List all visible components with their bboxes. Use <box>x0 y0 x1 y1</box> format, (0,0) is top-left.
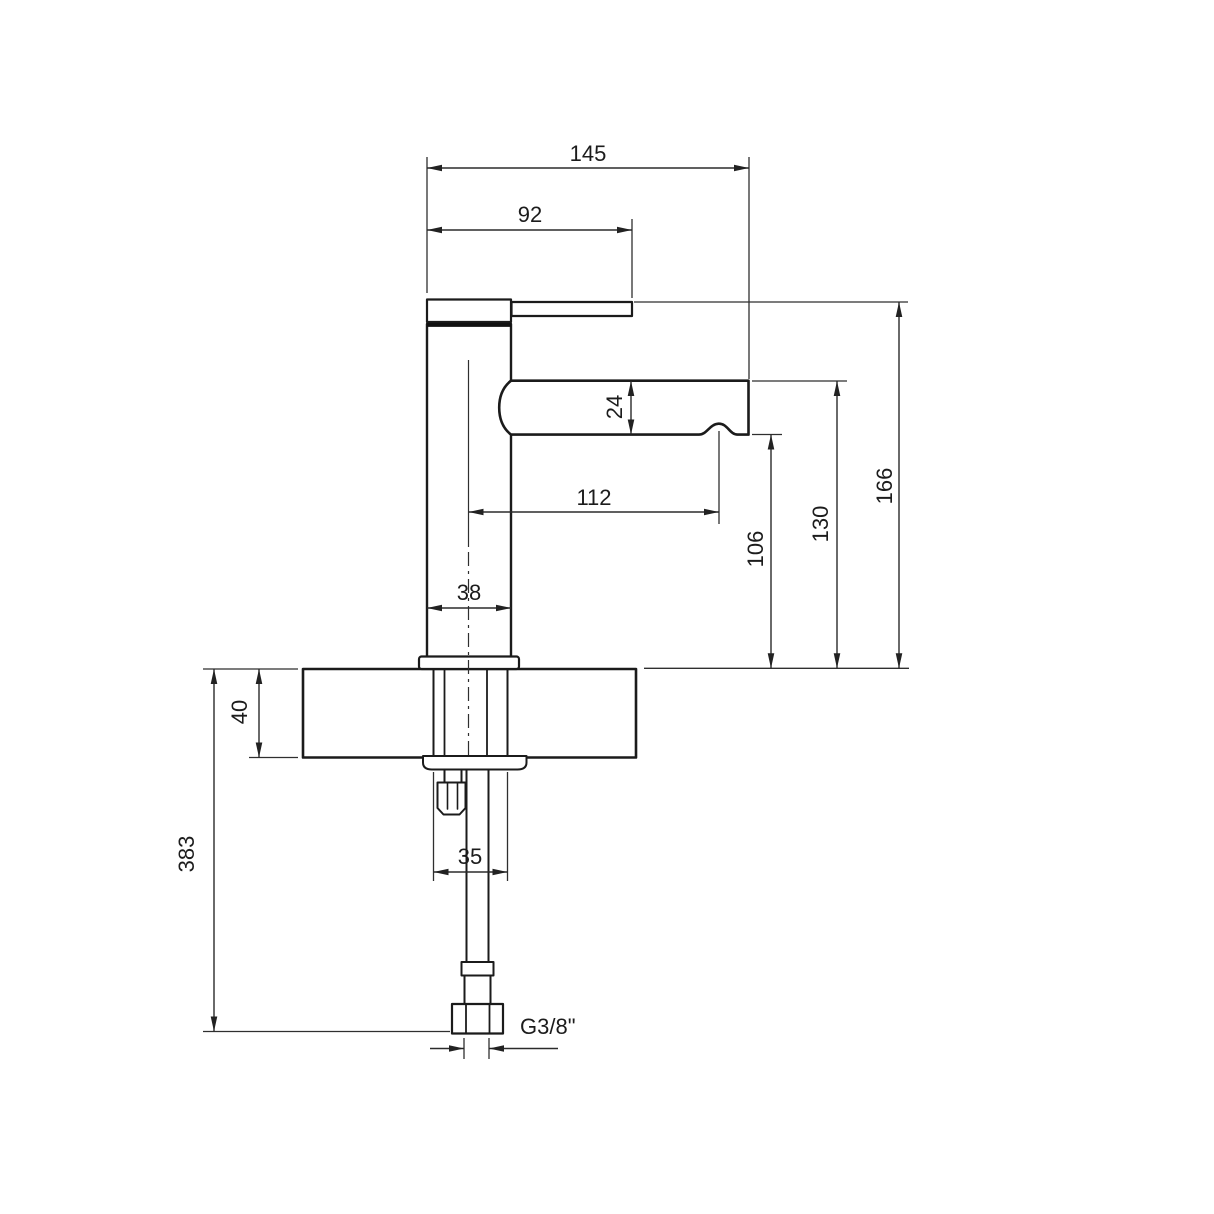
dim-106-label: 106 <box>743 531 768 568</box>
faucet-outline <box>303 300 749 1034</box>
dim-40: 40 <box>227 669 259 758</box>
dim-g38-label: G3/8" <box>520 1014 576 1039</box>
dim-35-label: 35 <box>458 844 482 869</box>
dim-40-label: 40 <box>227 700 252 724</box>
dim-38-label: 38 <box>457 580 481 605</box>
hose-crimp-connector <box>462 962 494 1004</box>
dim-24-label: 24 <box>602 395 627 419</box>
dim-130: 130 <box>808 381 837 668</box>
dimension-annotations: 145 92 166 130 106 24 112 <box>174 141 909 1059</box>
washer-plate <box>423 756 527 770</box>
technical-drawing-page: 145 92 166 130 106 24 112 <box>0 0 1214 1214</box>
dim-383-label: 383 <box>174 836 199 873</box>
tap-handle-lever <box>512 302 633 316</box>
hose-nut-g38 <box>452 1004 503 1034</box>
dim-166-label: 166 <box>872 468 897 505</box>
tap-handle-cap <box>427 300 511 323</box>
dim-383: 383 <box>174 669 214 1032</box>
dim-35: 35 <box>434 844 508 872</box>
dim-166: 166 <box>872 302 899 668</box>
dim-130-label: 130 <box>808 506 833 543</box>
technical-drawing-canvas: 145 92 166 130 106 24 112 <box>0 0 1214 1214</box>
dim-145: 145 <box>427 141 749 168</box>
dim-106: 106 <box>743 435 771 669</box>
dim-92: 92 <box>427 202 632 230</box>
dim-92-label: 92 <box>518 202 542 227</box>
dim-112-label: 112 <box>576 485 611 510</box>
dim-145-label: 145 <box>570 141 607 166</box>
countertop-section <box>303 669 636 758</box>
mounting-nut <box>438 770 466 815</box>
